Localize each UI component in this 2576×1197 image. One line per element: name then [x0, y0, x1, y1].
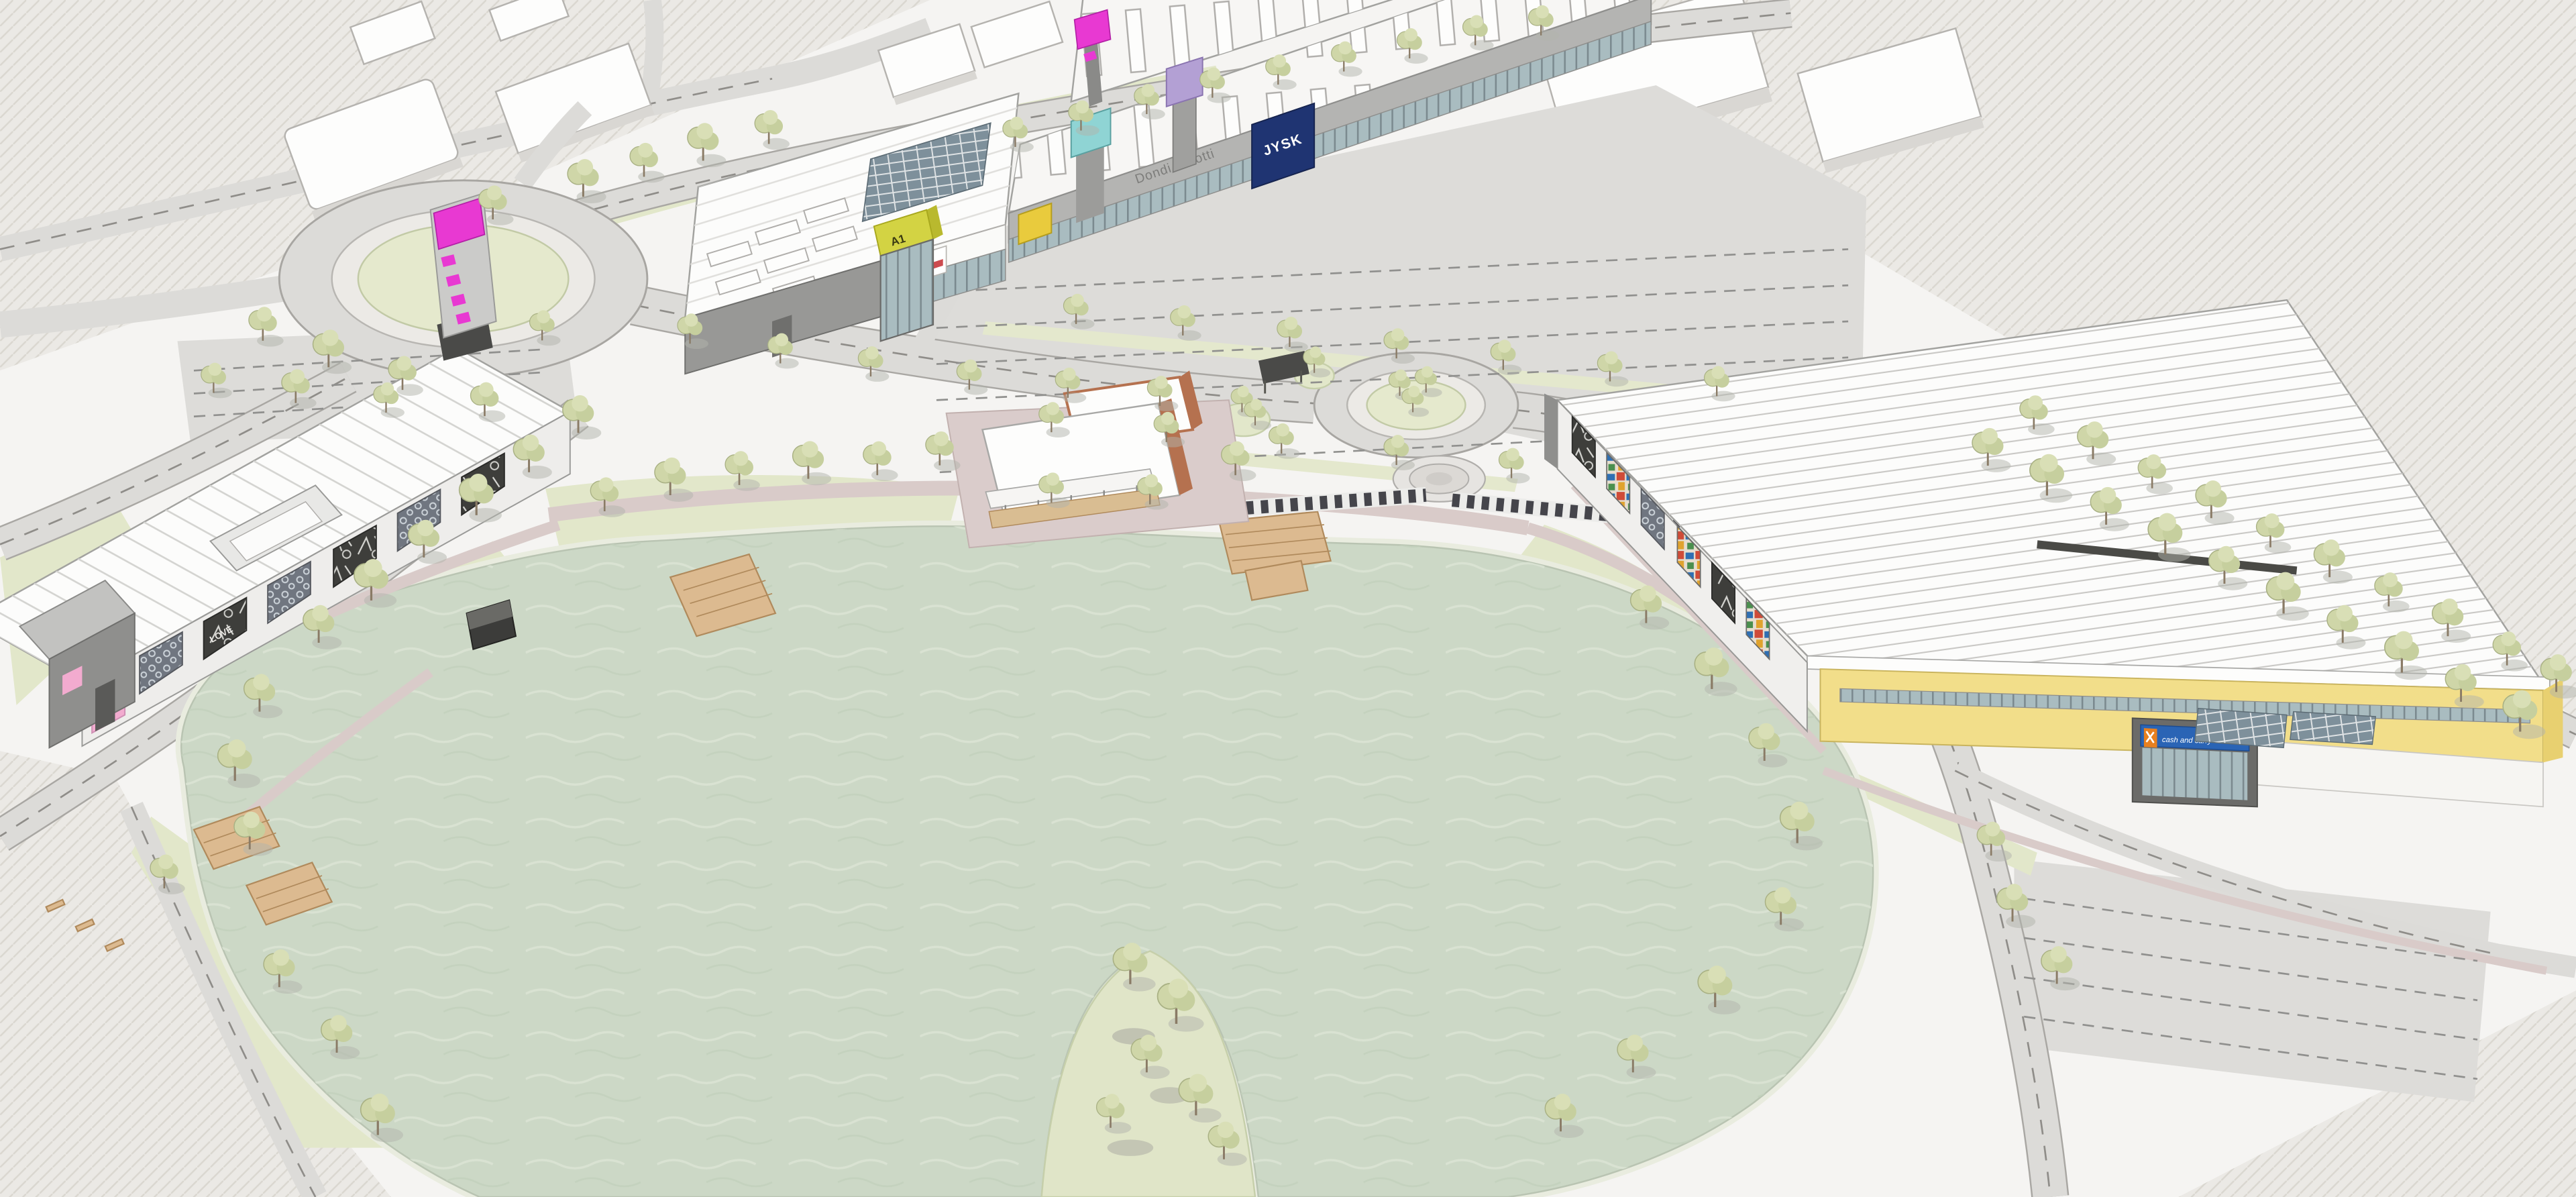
a1-entrance-tower: A1	[874, 205, 943, 341]
site-plan-rendering: Dondi Salotti JYSK A1 LOVE	[0, 0, 2576, 1197]
roundabout-center	[1314, 352, 1518, 457]
solar-panels	[2290, 712, 2375, 745]
solar-panels	[2195, 709, 2287, 748]
corner-sliver	[1544, 394, 1558, 469]
lake	[181, 526, 1873, 1197]
